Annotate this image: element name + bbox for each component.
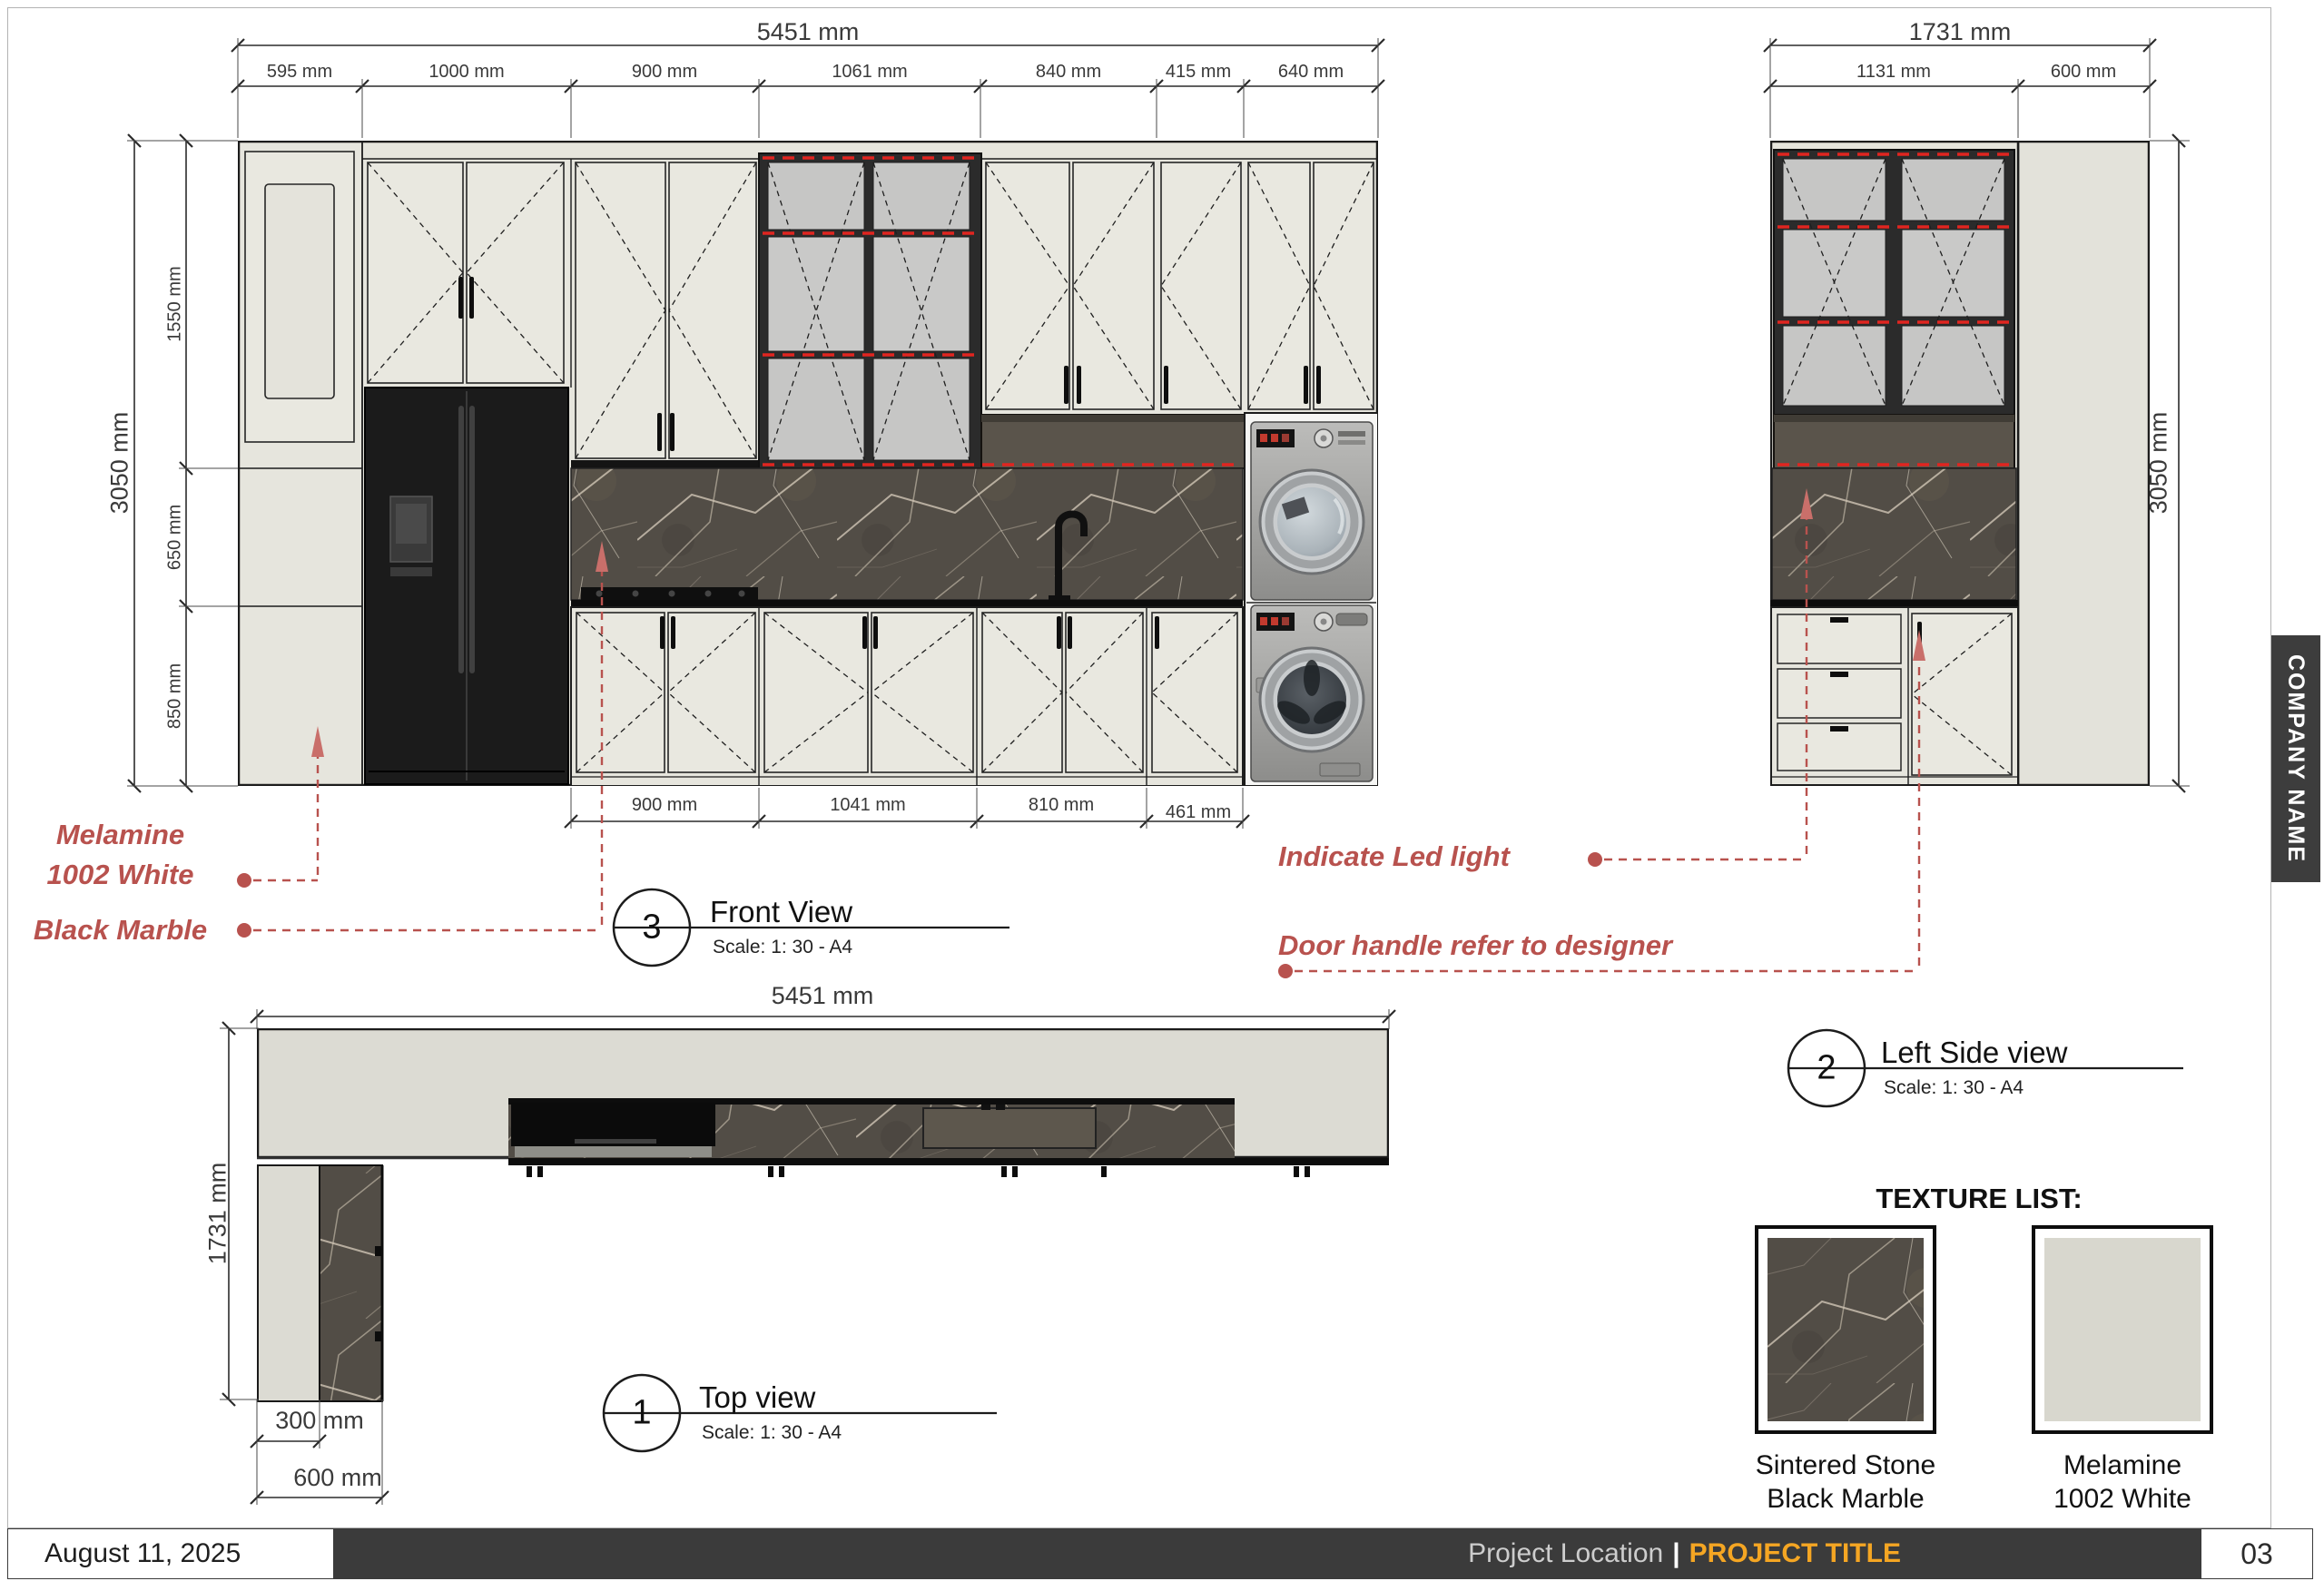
side-view-title: Left Side view	[1881, 1036, 2067, 1070]
dim-front-top-6: 640 mm	[1278, 62, 1344, 83]
annotation-melamine: Melamine 1002 White	[9, 815, 231, 895]
washer-stack	[1245, 413, 1378, 786]
company-name-bar: COMPANY NAME	[2271, 635, 2320, 882]
annotation-door-handle: Door handle refer to designer	[1278, 926, 1672, 966]
footer-date: August 11, 2025	[7, 1528, 334, 1579]
side-view-drawing	[1770, 141, 2150, 786]
dim-top-total-height: 1731 mm	[204, 1163, 232, 1265]
dim-front-total-width: 5451 mm	[757, 18, 860, 46]
dim-front-left-0: 1550 mm	[165, 266, 186, 341]
side-glass-cabinet	[1774, 150, 2014, 415]
company-name-label: COMPANY NAME	[2271, 635, 2320, 882]
side-counter-edge	[1770, 600, 2018, 607]
footer-project-title: PROJECT TITLE	[1689, 1538, 1901, 1568]
top-view-number: 1	[632, 1394, 651, 1433]
top-view-title: Top view	[699, 1380, 815, 1415]
dim-front-bottom-3: 461 mm	[1166, 802, 1231, 823]
front-view-number: 3	[642, 908, 661, 948]
texture-swatch-melamine	[2032, 1225, 2213, 1434]
side-view-scale: Scale: 1: 30 - A4	[1884, 1077, 2024, 1099]
marble-texture-image	[1768, 1238, 1924, 1421]
annotation-led-light: Indicate Led light	[1278, 837, 1510, 877]
washer	[1251, 605, 1373, 781]
dim-front-left-1: 650 mm	[165, 505, 186, 570]
texture-label-marble-line2: Black Marble	[1732, 1482, 1959, 1516]
dim-top-outer: 600 mm	[293, 1464, 382, 1492]
side-marble	[1772, 468, 2016, 600]
footer-location: Project Location	[1468, 1538, 1663, 1568]
dim-front-left-2: 850 mm	[165, 663, 186, 729]
front-view-drawing	[238, 141, 1378, 786]
dim-top-inner: 300 mm	[275, 1407, 364, 1435]
annotation-melamine-line1: Melamine	[9, 815, 231, 855]
dim-front-bottom-1: 1041 mm	[830, 795, 905, 816]
marble-backsplash	[571, 468, 1243, 600]
side-panel	[2018, 142, 2149, 785]
texture-list-title: TEXTURE LIST:	[1866, 1183, 2093, 1215]
cooktop	[581, 587, 758, 600]
dim-side-total-height: 3050 mm	[2145, 412, 2173, 515]
dim-side-top-1: 600 mm	[2051, 62, 2116, 83]
drawing-sheet: 5451 mm 595 mm 1000 mm 900 mm 1061 mm 84…	[0, 0, 2324, 1581]
dim-front-total-height: 3050 mm	[106, 412, 134, 515]
footer-bar: Project Location|PROJECT TITLE	[334, 1528, 2201, 1579]
dim-front-top-0: 595 mm	[267, 62, 332, 83]
annotation-black-marble: Black Marble	[9, 910, 231, 950]
texture-label-marble-line1: Sintered Stone	[1732, 1448, 1959, 1482]
left-wing	[258, 1165, 383, 1401]
texture-label-melamine-line2: 1002 White	[2009, 1482, 2236, 1516]
footer-page-number: 03	[2201, 1528, 2313, 1579]
top-cooktop	[511, 1103, 715, 1157]
dim-front-top-2: 900 mm	[632, 62, 697, 83]
glass-display-cabinet	[759, 153, 981, 468]
front-view-title: Front View	[710, 895, 852, 929]
melamine-texture-image	[2044, 1238, 2201, 1421]
dim-side-total-width: 1731 mm	[1909, 18, 2012, 46]
countertop-edge	[571, 600, 1243, 607]
dim-front-top-4: 840 mm	[1036, 62, 1101, 83]
top-view-scale: Scale: 1: 30 - A4	[702, 1422, 842, 1444]
dim-front-top-3: 1061 mm	[832, 62, 907, 83]
annotation-melamine-line2: 1002 White	[9, 855, 231, 895]
dim-front-top-1: 1000 mm	[428, 62, 504, 83]
dim-front-bottom-0: 900 mm	[632, 795, 697, 816]
texture-swatch-marble	[1755, 1225, 1936, 1434]
top-view-drawing	[257, 1028, 1389, 1402]
side-open-shelf	[1774, 415, 2014, 468]
texture-label-melamine: Melamine 1002 White	[2009, 1448, 2236, 1516]
footer-separator: |	[1663, 1538, 1689, 1568]
front-view-scale: Scale: 1: 30 - A4	[713, 937, 852, 958]
open-shelf-box	[981, 415, 1245, 468]
fridge	[365, 388, 568, 784]
side-view-number: 2	[1817, 1049, 1836, 1088]
dim-front-bottom-2: 810 mm	[1029, 795, 1094, 816]
texture-label-melamine-line1: Melamine	[2009, 1448, 2236, 1482]
front-edge	[508, 1158, 1389, 1165]
dim-top-total-width: 5451 mm	[772, 982, 874, 1010]
dryer	[1251, 422, 1373, 600]
dim-side-top-0: 1131 mm	[1856, 62, 1931, 83]
door-handle-marks	[293, 1166, 1310, 1177]
texture-label-marble: Sintered Stone Black Marble	[1732, 1448, 1959, 1516]
top-sink-box	[923, 1105, 1096, 1148]
dim-front-top-5: 415 mm	[1166, 62, 1231, 83]
